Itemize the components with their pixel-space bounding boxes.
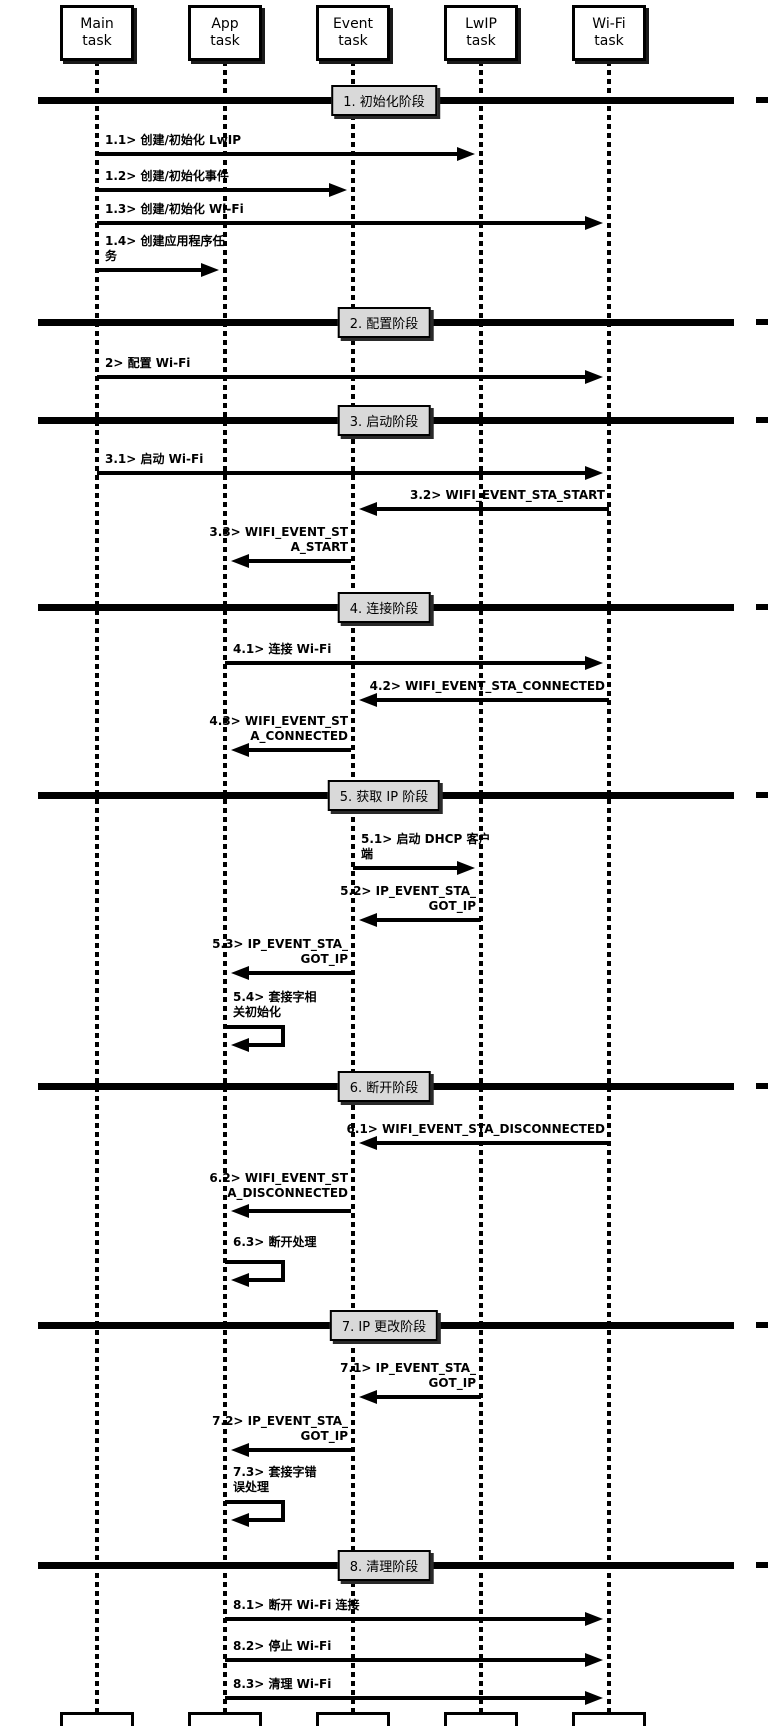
message-5-3-label: 5.3> IP_EVENT_STA_ GOT_IP xyxy=(212,937,348,967)
message-1-3-arrowhead-icon xyxy=(585,216,603,230)
message-1-1-arrow xyxy=(97,152,461,156)
task-label-event: Event task xyxy=(333,16,373,51)
phase-label-8: 8. 清理阶段 xyxy=(338,1550,431,1581)
message-5-2-arrow xyxy=(373,918,481,922)
phase-label-6: 6. 断开阶段 xyxy=(338,1071,431,1102)
message-3-3-arrowhead-icon xyxy=(231,554,249,568)
message-4-2-arrowhead-icon xyxy=(359,693,377,707)
message-7-3-loop-bottom xyxy=(247,1518,285,1522)
message-6-3-loop-bottom xyxy=(247,1278,285,1282)
message-5-3-arrow xyxy=(245,971,351,975)
message-7-3-label: 7.3> 套接字错 误处理 xyxy=(233,1465,317,1495)
message-4-3-arrowhead-icon xyxy=(231,743,249,757)
message-5-1-label: 5.1> 启动 DHCP 客户 端 xyxy=(361,832,490,862)
lifeline-main-task xyxy=(95,61,99,1714)
message-8-1-arrowhead-icon xyxy=(585,1612,603,1626)
phase-divider-5-stub xyxy=(756,792,768,798)
message-3-1-arrow xyxy=(97,471,589,475)
message-8-1-arrow xyxy=(225,1617,589,1621)
message-5-2-label: 5.2> IP_EVENT_STA_ GOT_IP xyxy=(340,884,476,914)
phase-divider-8-stub xyxy=(756,1562,768,1568)
phase-label-1: 1. 初始化阶段 xyxy=(331,85,437,116)
message-8-3-arrow xyxy=(225,1696,589,1700)
message-1-2-arrow xyxy=(97,188,333,192)
task-box-main: Main task xyxy=(60,5,134,61)
message-7-2-label: 7.2> IP_EVENT_STA_ GOT_IP xyxy=(212,1414,348,1444)
message-6-1-arrow xyxy=(373,1141,609,1145)
message-4-1-arrow xyxy=(225,661,589,665)
message-7-3-loop-top xyxy=(225,1500,285,1504)
message-5-1-arrowhead-icon xyxy=(457,861,475,875)
message-6-2-arrowhead-icon xyxy=(231,1204,249,1218)
message-1-2-arrowhead-icon xyxy=(329,183,347,197)
message-5-4-loop-top xyxy=(225,1025,285,1029)
message-5-4-loop-bottom xyxy=(247,1043,285,1047)
message-5-4-arrowhead-icon xyxy=(231,1038,249,1052)
lifeline-lwip-task xyxy=(479,61,483,1714)
task-box-wifi: Wi-Fi task xyxy=(572,5,646,61)
message-4-2-arrow xyxy=(373,698,609,702)
message-3-2-arrow xyxy=(373,507,609,511)
message-7-3-arrowhead-icon xyxy=(231,1513,249,1527)
phase-label-2: 2. 配置阶段 xyxy=(338,307,431,338)
task-box-app: App task xyxy=(188,5,262,61)
message-4-3-label: 4.3> WIFI_EVENT_ST A_CONNECTED xyxy=(209,714,348,744)
message-1-2-label: 1.2> 创建/初始化事件 xyxy=(105,169,229,184)
message-8-3-label: 8.3> 清理 Wi-Fi xyxy=(233,1677,331,1692)
message-3-1-label: 3.1> 启动 Wi-Fi xyxy=(105,452,203,467)
message-5-2-arrowhead-icon xyxy=(359,913,377,927)
message-1-3-label: 1.3> 创建/初始化 Wi-Fi xyxy=(105,202,244,217)
phase-divider-6-stub xyxy=(756,1083,768,1089)
message-6-1-arrowhead-icon xyxy=(359,1136,377,1150)
phase-divider-2-stub xyxy=(756,319,768,325)
task-label-main: Main task xyxy=(80,16,113,51)
message-8-3-arrowhead-icon xyxy=(585,1691,603,1705)
footer-box-event xyxy=(316,1712,390,1726)
message-7-2-arrow xyxy=(245,1448,351,1452)
footer-box-main xyxy=(60,1712,134,1726)
message-4-3-arrow xyxy=(245,748,351,752)
sequence-diagram: Main task App task Event task LwIP task … xyxy=(0,0,768,1726)
footer-box-wifi xyxy=(572,1712,646,1726)
phase-divider-3-stub xyxy=(756,417,768,423)
phase-divider-1-stub xyxy=(756,97,768,103)
message-1-4-arrowhead-icon xyxy=(201,263,219,277)
message-6-3-label: 6.3> 断开处理 xyxy=(233,1235,317,1250)
message-7-1-arrow xyxy=(373,1395,481,1399)
message-6-1-label: 6.1> WIFI_EVENT_STA_DISCONNECTED xyxy=(347,1122,605,1137)
lifeline-app-task xyxy=(223,61,227,1714)
message-3-3-label: 3.3> WIFI_EVENT_ST A_START xyxy=(209,525,348,555)
phase-label-4: 4. 连接阶段 xyxy=(338,592,431,623)
message-8-1-label: 8.1> 断开 Wi-Fi 连接 xyxy=(233,1598,360,1613)
footer-box-lwip xyxy=(444,1712,518,1726)
message-6-2-label: 6.2> WIFI_EVENT_ST A_DISCONNECTED xyxy=(209,1171,348,1201)
message-1-3-arrow xyxy=(97,221,589,225)
message-2-label: 2> 配置 Wi-Fi xyxy=(105,356,190,371)
message-3-2-label: 3.2> WIFI_EVENT_STA_START xyxy=(410,488,605,503)
message-7-2-arrowhead-icon xyxy=(231,1443,249,1457)
footer-box-app xyxy=(188,1712,262,1726)
task-box-lwip: LwIP task xyxy=(444,5,518,61)
message-4-1-label: 4.1> 连接 Wi-Fi xyxy=(233,642,331,657)
message-2-arrowhead-icon xyxy=(585,370,603,384)
message-3-2-arrowhead-icon xyxy=(359,502,377,516)
phase-label-3: 3. 启动阶段 xyxy=(338,405,431,436)
task-label-lwip: LwIP task xyxy=(465,16,497,51)
message-7-1-arrowhead-icon xyxy=(359,1390,377,1404)
message-1-4-arrow xyxy=(97,268,205,272)
message-2-arrow xyxy=(97,375,589,379)
message-8-2-arrowhead-icon xyxy=(585,1653,603,1667)
lifeline-wifi-task xyxy=(607,61,611,1714)
task-label-wifi: Wi-Fi task xyxy=(592,16,625,51)
task-label-app: App task xyxy=(210,16,239,51)
task-box-event: Event task xyxy=(316,5,390,61)
message-1-1-label: 1.1> 创建/初始化 LwIP xyxy=(105,133,241,148)
message-8-2-arrow xyxy=(225,1658,589,1662)
message-1-4-label: 1.4> 创建应用程序任 务 xyxy=(105,234,225,264)
message-4-1-arrowhead-icon xyxy=(585,656,603,670)
phase-divider-4-stub xyxy=(756,604,768,610)
message-6-3-loop-top xyxy=(225,1260,285,1264)
phase-label-7: 7. IP 更改阶段 xyxy=(330,1310,438,1341)
message-7-1-label: 7.1> IP_EVENT_STA_ GOT_IP xyxy=(340,1361,476,1391)
message-5-4-label: 5.4> 套接字相 关初始化 xyxy=(233,990,317,1020)
phase-label-5: 5. 获取 IP 阶段 xyxy=(328,780,440,811)
message-1-1-arrowhead-icon xyxy=(457,147,475,161)
message-3-3-arrow xyxy=(245,559,351,563)
message-3-1-arrowhead-icon xyxy=(585,466,603,480)
message-5-3-arrowhead-icon xyxy=(231,966,249,980)
message-6-2-arrow xyxy=(245,1209,351,1213)
message-4-2-label: 4.2> WIFI_EVENT_STA_CONNECTED xyxy=(370,679,605,694)
phase-divider-7-stub xyxy=(756,1322,768,1328)
message-8-2-label: 8.2> 停止 Wi-Fi xyxy=(233,1639,331,1654)
message-6-3-arrowhead-icon xyxy=(231,1273,249,1287)
message-5-1-arrow xyxy=(353,866,461,870)
